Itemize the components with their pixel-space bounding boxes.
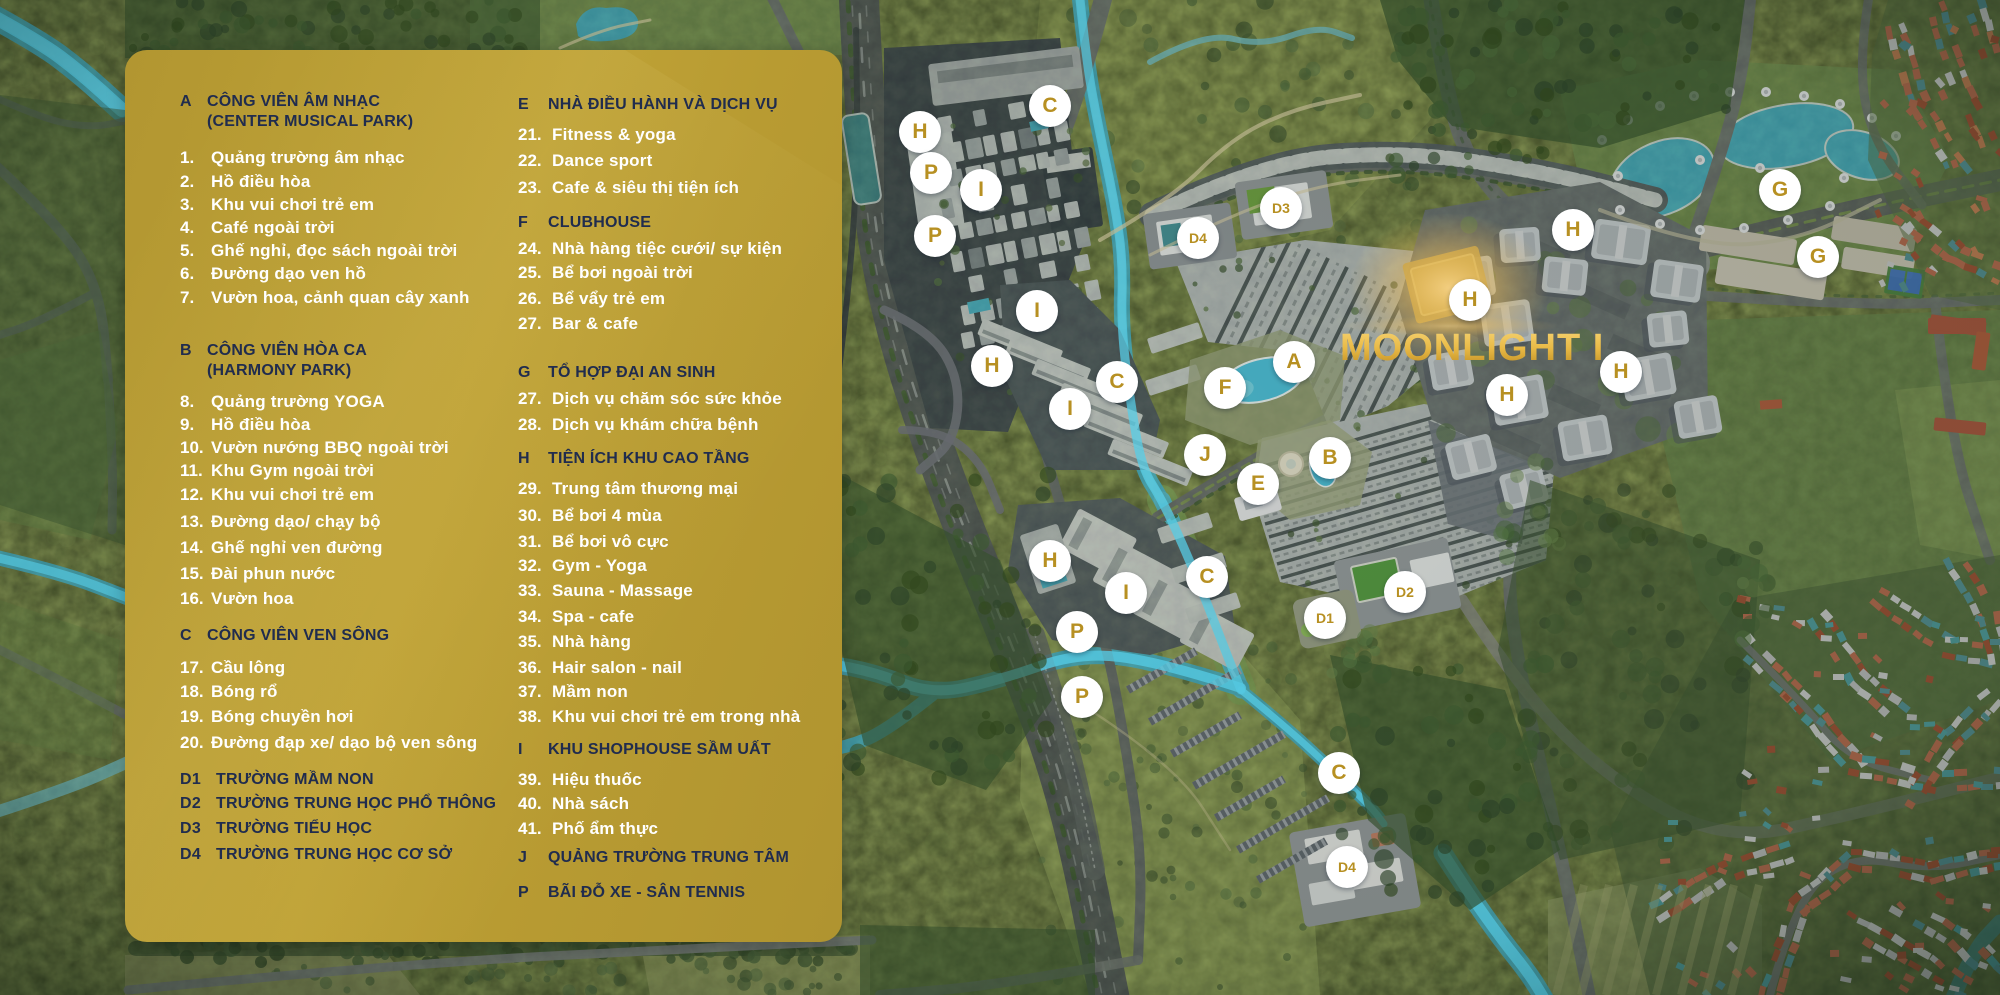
svg-text:MOONLIGHT I: MOONLIGHT I (1340, 327, 1604, 369)
